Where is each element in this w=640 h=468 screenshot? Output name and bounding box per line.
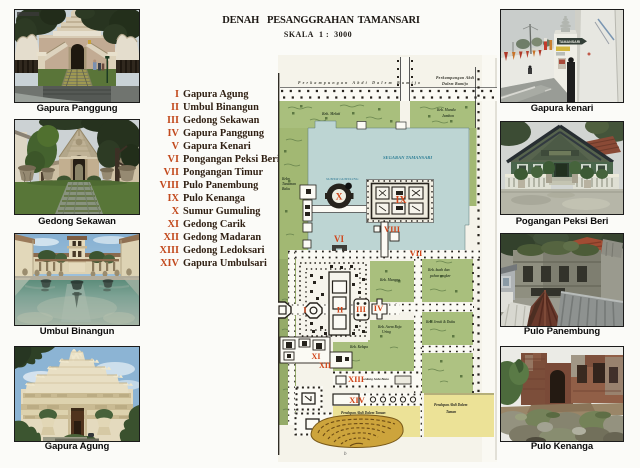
svg-text:Keb. Mundu: Keb. Mundu xyxy=(436,108,456,112)
svg-text:Kebn: Kebn xyxy=(281,177,290,181)
svg-text:Taman: Taman xyxy=(446,410,456,414)
svg-text:Keb. buah dan: Keb. buah dan xyxy=(427,268,450,272)
svg-text:TAMANSARI: TAMANSARI xyxy=(559,40,580,44)
svg-text:X: X xyxy=(336,193,343,203)
svg-text:Baku: Baku xyxy=(281,187,290,191)
svg-text:XIV: XIV xyxy=(349,395,365,405)
svg-text:SEGARAN TAMANSARI: SEGARAN TAMANSARI xyxy=(383,155,432,160)
svg-text:Pendopan Abdi Dalem: Pendopan Abdi Dalem xyxy=(434,403,468,407)
svg-text:II: II xyxy=(337,305,344,315)
svg-text:IX: IX xyxy=(395,195,407,206)
svg-text:XII: XII xyxy=(319,361,331,370)
svg-text:Keb. Asem Rojo: Keb. Asem Rojo xyxy=(377,325,402,329)
svg-text:Jambon: Jambon xyxy=(442,114,454,118)
svg-text:Tanaman: Tanaman xyxy=(282,182,296,186)
svg-text:VIII: VIII xyxy=(384,224,401,234)
svg-text:VI: VI xyxy=(334,234,344,244)
svg-text:Perkampungan Abdi Dalem Bum: Perkampungan Abdi Dalem Bumijo xyxy=(298,81,420,85)
svg-text:Keb. Mangga: Keb. Mangga xyxy=(379,278,400,282)
svg-text:pohon angker: pohon angker xyxy=(429,274,451,278)
svg-text:SUMUR GUMULING: SUMUR GUMULING xyxy=(326,177,359,181)
svg-text:Perkampungan Abdi: Perkampungan Abdi xyxy=(436,76,475,80)
svg-text:XIII: XIII xyxy=(348,374,365,384)
svg-text:XI: XI xyxy=(312,352,321,361)
svg-text:Pendopan Abdi Dalem Taman: Pendopan Abdi Dalem Taman xyxy=(341,411,386,415)
svg-text:Keb. Kelapa: Keb. Kelapa xyxy=(349,345,368,349)
svg-text:Dalem Bumijo: Dalem Bumijo xyxy=(441,82,468,86)
svg-text:Keb. Jeruk & Duku: Keb. Jeruk & Duku xyxy=(425,320,455,324)
svg-text:III: III xyxy=(356,304,367,314)
svg-text:Gedong Seda Bono: Gedong Seda Bono xyxy=(362,377,389,381)
svg-text:VII: VII xyxy=(410,248,423,258)
svg-text:IV: IV xyxy=(374,303,384,313)
svg-text:Keb. Melati: Keb. Melati xyxy=(321,112,341,116)
svg-text:Uring: Uring xyxy=(382,330,391,334)
